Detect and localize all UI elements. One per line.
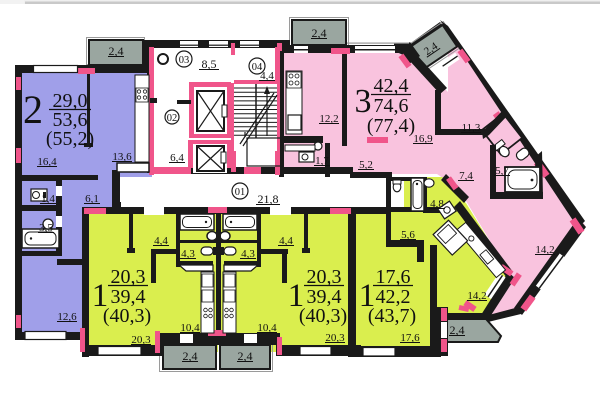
svg-text:2,4: 2,4 (183, 349, 198, 363)
svg-text:20,3: 20,3 (111, 266, 146, 288)
svg-text:2,4: 2,4 (450, 323, 465, 337)
svg-text:(40,3): (40,3) (299, 305, 347, 327)
svg-text:2,4: 2,4 (312, 26, 327, 40)
svg-text:20,3: 20,3 (307, 266, 342, 288)
svg-text:21,8: 21,8 (258, 192, 279, 206)
svg-text:17,6: 17,6 (376, 266, 411, 288)
svg-text:42,4: 42,4 (374, 75, 409, 97)
svg-text:02: 02 (167, 113, 178, 124)
svg-text:(40,3): (40,3) (103, 305, 151, 327)
svg-text:8,5: 8,5 (202, 57, 217, 71)
svg-text:(55,2): (55,2) (46, 128, 94, 150)
svg-text:03: 03 (179, 55, 190, 66)
svg-text:2: 2 (23, 87, 43, 132)
svg-text:2,4: 2,4 (109, 44, 124, 58)
svg-text:01: 01 (235, 187, 246, 198)
svg-text:(43,7): (43,7) (368, 305, 416, 327)
svg-text:2,4: 2,4 (238, 349, 253, 363)
svg-text:(77,4): (77,4) (367, 115, 415, 137)
svg-text:74,6: 74,6 (374, 95, 409, 117)
